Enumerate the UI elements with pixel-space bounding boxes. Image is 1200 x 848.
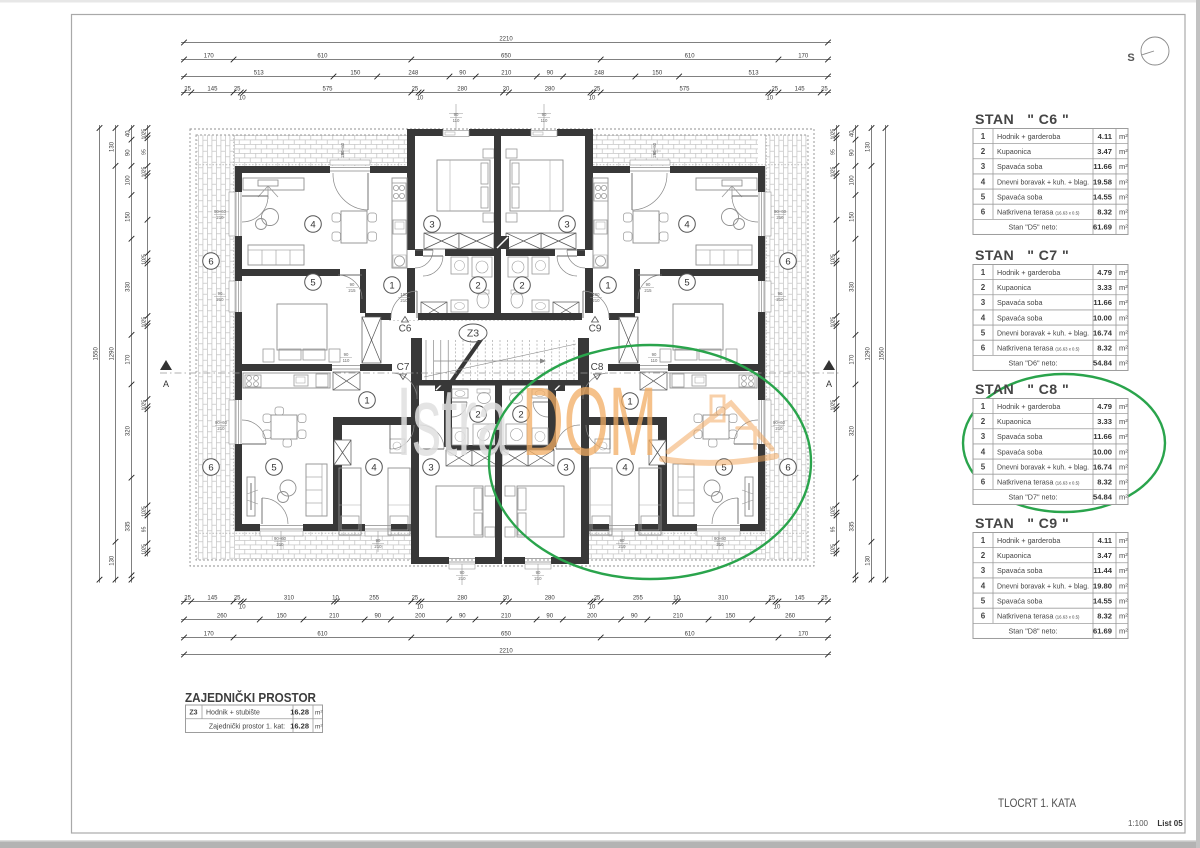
svg-text:10: 10 (589, 605, 596, 611)
svg-text:25: 25 (594, 595, 601, 601)
svg-text:8.32: 8.32 (1097, 612, 1112, 621)
svg-text:Z3: Z3 (189, 710, 197, 717)
svg-text:25: 25 (184, 86, 191, 92)
svg-text:280: 280 (457, 595, 468, 601)
svg-text:90: 90 (631, 613, 638, 619)
svg-text:6: 6 (785, 256, 790, 267)
svg-text:150: 150 (125, 211, 131, 222)
svg-text:4.79: 4.79 (1097, 268, 1112, 277)
svg-text:100: 100 (125, 175, 131, 186)
svg-text:10: 10 (589, 96, 596, 102)
svg-text:3: 3 (429, 219, 434, 230)
svg-text:10: 10 (141, 511, 147, 517)
svg-text:10: 10 (141, 172, 147, 178)
svg-text:25: 25 (412, 86, 419, 92)
svg-text:215: 215 (348, 288, 356, 293)
svg-text:8.32: 8.32 (1097, 208, 1112, 217)
svg-text:145: 145 (795, 595, 806, 601)
svg-text:Stan "D5" neto:: Stan "D5" neto: (1008, 223, 1057, 232)
svg-text:2: 2 (519, 280, 524, 291)
svg-text:150: 150 (652, 70, 663, 76)
svg-text:95: 95 (830, 149, 836, 155)
svg-text:210: 210 (618, 544, 626, 549)
svg-text:5: 5 (310, 277, 315, 288)
svg-text:610: 610 (317, 53, 328, 59)
svg-text:320: 320 (125, 425, 131, 436)
svg-text:11.66: 11.66 (1093, 432, 1112, 441)
svg-text:650: 650 (501, 53, 512, 59)
svg-text:210: 210 (458, 576, 466, 581)
svg-text:Stan "D8" neto:: Stan "D8" neto: (1008, 627, 1057, 636)
svg-text:210: 210 (501, 613, 512, 619)
svg-text:10: 10 (141, 322, 147, 328)
svg-text:40: 40 (125, 130, 131, 137)
svg-text:10: 10 (830, 511, 836, 517)
svg-text:25: 25 (234, 86, 241, 92)
svg-text:110: 110 (343, 358, 350, 363)
svg-text:10: 10 (141, 549, 147, 555)
svg-text:20: 20 (503, 595, 510, 601)
svg-text:25: 25 (830, 129, 836, 135)
svg-text:145: 145 (207, 86, 218, 92)
svg-text:Spavaća soba: Spavaća soba (997, 162, 1043, 171)
svg-text:25: 25 (141, 167, 147, 173)
svg-text:14.55: 14.55 (1093, 192, 1113, 201)
svg-text:1: 1 (981, 536, 986, 545)
svg-text:16.74: 16.74 (1093, 328, 1113, 337)
svg-text:10: 10 (239, 96, 246, 102)
svg-text:25: 25 (830, 167, 836, 173)
svg-text:1: 1 (605, 280, 610, 291)
svg-text:19.80: 19.80 (1093, 581, 1112, 590)
svg-text:54.84: 54.84 (1093, 359, 1113, 368)
svg-text:170: 170 (204, 631, 215, 637)
svg-text:150: 150 (277, 613, 288, 619)
svg-text:6: 6 (785, 462, 790, 473)
svg-text:6: 6 (208, 256, 213, 267)
svg-text:List 05: List 05 (1157, 819, 1183, 828)
svg-text:4: 4 (310, 219, 315, 230)
svg-text:170: 170 (125, 354, 131, 365)
svg-text:16.74: 16.74 (1093, 462, 1113, 471)
svg-text:40: 40 (849, 130, 855, 137)
svg-text:90: 90 (460, 570, 465, 575)
svg-text:5: 5 (981, 596, 986, 605)
svg-text:210: 210 (276, 542, 284, 547)
svg-text:61.69: 61.69 (1093, 627, 1112, 636)
svg-text:210: 210 (501, 70, 512, 76)
svg-text:260: 260 (217, 613, 228, 619)
svg-text:210: 210 (216, 297, 224, 302)
svg-text:25: 25 (821, 86, 828, 92)
svg-text:1: 1 (389, 280, 394, 291)
svg-text:95: 95 (141, 149, 147, 155)
svg-text:90+60: 90+60 (215, 420, 228, 425)
svg-text:100: 100 (400, 292, 408, 297)
svg-text:25: 25 (821, 595, 828, 601)
svg-text:280: 280 (457, 86, 468, 92)
svg-text:11.44: 11.44 (1093, 566, 1112, 575)
svg-text:90: 90 (536, 570, 541, 575)
svg-text:5: 5 (271, 462, 276, 473)
svg-text:25: 25 (769, 595, 776, 601)
svg-text:5: 5 (684, 277, 689, 288)
svg-text:11.66: 11.66 (1093, 298, 1112, 307)
svg-text:2: 2 (981, 147, 986, 156)
svg-text:10: 10 (830, 172, 836, 178)
svg-text:335: 335 (849, 521, 855, 532)
svg-text:10: 10 (417, 96, 424, 102)
svg-text:ZAJEDNIČKI PROSTOR: ZAJEDNIČKI PROSTOR (185, 690, 317, 705)
svg-text:STAN " C7 ": STAN " C7 " (975, 248, 1069, 264)
svg-text:Dnevni boravak + kuh. + blag.: Dnevni boravak + kuh. + blag. (997, 328, 1089, 337)
svg-text:210: 210 (775, 426, 783, 431)
svg-text:650: 650 (501, 631, 512, 637)
svg-text:3.47: 3.47 (1097, 551, 1112, 560)
svg-text:14.55: 14.55 (1093, 596, 1113, 605)
svg-text:25: 25 (141, 506, 147, 512)
svg-text:25: 25 (234, 595, 241, 601)
svg-text:25: 25 (184, 595, 191, 601)
svg-text:90: 90 (376, 538, 381, 543)
svg-text:A: A (163, 379, 169, 389)
svg-text:STAN " C6 ": STAN " C6 " (975, 112, 1069, 128)
svg-text:10: 10 (830, 322, 836, 328)
svg-text:25: 25 (141, 544, 147, 550)
svg-text:Stan "D6" neto:: Stan "D6" neto: (1008, 359, 1057, 368)
svg-text:513: 513 (749, 70, 760, 76)
svg-text:3: 3 (981, 298, 986, 307)
svg-text:54.84: 54.84 (1093, 493, 1113, 502)
svg-text:280: 280 (545, 86, 556, 92)
svg-text:150: 150 (725, 613, 736, 619)
svg-text:8.32: 8.32 (1097, 478, 1112, 487)
svg-text:610: 610 (685, 631, 696, 637)
svg-text:610: 610 (685, 53, 696, 59)
svg-text:310: 310 (718, 595, 729, 601)
svg-text:575: 575 (323, 86, 334, 92)
svg-text:25: 25 (141, 129, 147, 135)
svg-text:4: 4 (684, 219, 689, 230)
svg-text:10: 10 (830, 134, 836, 140)
svg-text:610: 610 (317, 631, 328, 637)
svg-text:10: 10 (830, 549, 836, 555)
svg-text:210: 210 (534, 576, 542, 581)
svg-text:1: 1 (981, 402, 986, 411)
svg-text:Hodnik + garderoba: Hodnik + garderoba (997, 132, 1060, 141)
svg-text:1: 1 (364, 395, 369, 406)
svg-text:25: 25 (830, 317, 836, 323)
svg-text:90: 90 (459, 613, 466, 619)
svg-text:90+60: 90+60 (714, 536, 727, 541)
svg-text:5: 5 (981, 462, 986, 471)
svg-text:25: 25 (771, 86, 778, 92)
svg-text:4: 4 (371, 462, 376, 473)
svg-text:150: 150 (350, 70, 361, 76)
svg-text:170: 170 (798, 631, 809, 637)
svg-text:210: 210 (716, 542, 724, 547)
svg-text:STAN " C8 ": STAN " C8 " (975, 382, 1069, 398)
svg-text:A: A (826, 379, 832, 389)
svg-text:Hodnik + garderoba: Hodnik + garderoba (997, 268, 1060, 277)
svg-text:Spavaća soba: Spavaća soba (997, 566, 1043, 575)
svg-text:145: 145 (207, 595, 218, 601)
svg-text:90: 90 (542, 112, 547, 117)
svg-text:Hodnik + garderoba: Hodnik + garderoba (997, 402, 1060, 411)
svg-text:Stan "D7" neto:: Stan "D7" neto: (1008, 493, 1057, 502)
svg-text:90: 90 (125, 149, 131, 156)
svg-text:10: 10 (673, 595, 680, 601)
svg-text:1: 1 (981, 268, 986, 277)
svg-text:3: 3 (981, 432, 986, 441)
svg-text:Hodnik + garderoba: Hodnik + garderoba (997, 536, 1060, 545)
svg-text:90+60: 90+60 (774, 209, 787, 214)
svg-text:3.33: 3.33 (1097, 417, 1112, 426)
svg-text:130: 130 (865, 141, 871, 152)
svg-text:3: 3 (981, 162, 986, 171)
svg-text:10: 10 (141, 405, 147, 411)
svg-text:110: 110 (651, 358, 658, 363)
svg-text:90: 90 (620, 538, 625, 543)
svg-text:Hodnik + stubište: Hodnik + stubište (206, 710, 260, 717)
svg-text:280: 280 (545, 595, 556, 601)
svg-text:S: S (1127, 52, 1134, 64)
svg-text:4.79: 4.79 (1097, 402, 1112, 411)
svg-text:4: 4 (981, 313, 986, 322)
svg-text:90: 90 (546, 613, 553, 619)
svg-text:Kupaonica: Kupaonica (997, 417, 1031, 426)
svg-text:6: 6 (981, 208, 986, 217)
svg-text:16.28: 16.28 (290, 708, 309, 717)
svg-text:Spavaća soba: Spavaća soba (997, 432, 1043, 441)
svg-text:25: 25 (141, 254, 147, 260)
svg-text:2: 2 (981, 283, 986, 292)
svg-text:Spavaća soba: Spavaća soba (997, 596, 1043, 605)
svg-text:90: 90 (350, 282, 355, 287)
svg-text:90: 90 (344, 352, 349, 357)
svg-text:25: 25 (141, 400, 147, 406)
svg-text:90: 90 (459, 70, 466, 76)
svg-text:10: 10 (417, 605, 424, 611)
svg-text:100: 100 (592, 292, 600, 297)
svg-text:130: 130 (109, 555, 115, 566)
svg-text:25: 25 (830, 544, 836, 550)
svg-text:110: 110 (453, 118, 460, 123)
svg-text:10: 10 (830, 405, 836, 411)
svg-text:Spavaća soba: Spavaća soba (997, 447, 1043, 456)
svg-text:Spavaća soba: Spavaća soba (997, 298, 1043, 307)
svg-text:3.47: 3.47 (1097, 147, 1112, 156)
svg-text:90+60: 90+60 (773, 420, 786, 425)
svg-text:248: 248 (408, 70, 419, 76)
svg-text:16.28: 16.28 (290, 721, 309, 730)
svg-text:330: 330 (125, 281, 131, 292)
svg-text:170: 170 (849, 354, 855, 365)
svg-text:90: 90 (652, 352, 657, 357)
svg-text:25: 25 (830, 254, 836, 260)
svg-text:150: 150 (849, 211, 855, 222)
svg-text:330: 330 (849, 281, 855, 292)
svg-text:6: 6 (208, 462, 213, 473)
svg-text:2: 2 (981, 551, 986, 560)
svg-text:100: 100 (849, 175, 855, 186)
svg-text:320: 320 (849, 425, 855, 436)
svg-text:1290: 1290 (865, 347, 871, 361)
svg-text:Kupaonica: Kupaonica (997, 147, 1031, 156)
svg-text:19.58: 19.58 (1093, 177, 1112, 186)
svg-text:210: 210 (216, 215, 224, 220)
svg-text:210: 210 (776, 215, 784, 220)
svg-text:4.11: 4.11 (1098, 132, 1113, 141)
svg-text:Istra: Istra (396, 367, 509, 476)
svg-text:C6: C6 (399, 324, 412, 335)
svg-text:10: 10 (141, 134, 147, 140)
svg-text:TLOCRT 1. KATA: TLOCRT 1. KATA (998, 796, 1076, 810)
svg-text:170: 170 (204, 53, 215, 59)
svg-text:130: 130 (109, 141, 115, 152)
svg-text:6: 6 (981, 344, 986, 353)
svg-text:Dnevni boravak + kuh. + blag.: Dnevni boravak + kuh. + blag. (997, 581, 1089, 590)
svg-text:10: 10 (774, 605, 781, 611)
svg-text:575: 575 (679, 86, 690, 92)
svg-text:210: 210 (592, 298, 600, 303)
svg-text:210: 210 (329, 613, 340, 619)
svg-text:90: 90 (454, 112, 459, 117)
svg-text:Spavaća soba: Spavaća soba (997, 192, 1043, 201)
svg-text:2: 2 (475, 280, 480, 291)
svg-text:10: 10 (766, 96, 773, 102)
svg-text:Dnevni boravak + kuh. + blag.: Dnevni boravak + kuh. + blag. (997, 462, 1089, 471)
svg-text:95: 95 (141, 526, 147, 532)
svg-text:25: 25 (412, 595, 419, 601)
svg-text:90+60: 90+60 (214, 209, 227, 214)
svg-text:90: 90 (374, 613, 381, 619)
svg-text:Dnevni boravak + kuh. + blag.: Dnevni boravak + kuh. + blag. (997, 177, 1089, 186)
svg-text:10: 10 (239, 605, 246, 611)
svg-text:Z3: Z3 (467, 328, 479, 340)
svg-text:8.32: 8.32 (1097, 344, 1112, 353)
svg-text:90: 90 (646, 282, 651, 287)
svg-text:3.33: 3.33 (1097, 283, 1112, 292)
svg-text:6: 6 (981, 478, 986, 487)
svg-text:Spavaća soba: Spavaća soba (997, 313, 1043, 322)
svg-text:4.11: 4.11 (1098, 536, 1113, 545)
svg-text:1:100: 1:100 (1128, 819, 1149, 828)
svg-text:3: 3 (981, 566, 986, 575)
svg-text:25: 25 (830, 506, 836, 512)
svg-text:255: 255 (633, 595, 644, 601)
svg-text:1: 1 (981, 132, 986, 141)
svg-text:90: 90 (849, 149, 855, 156)
svg-text:2210: 2210 (499, 36, 513, 42)
svg-text:215: 215 (644, 288, 652, 293)
svg-text:4: 4 (981, 177, 986, 186)
svg-text:200: 200 (415, 613, 426, 619)
svg-text:130: 130 (865, 555, 871, 566)
svg-text:Kupaonica: Kupaonica (997, 551, 1031, 560)
svg-text:1550: 1550 (879, 347, 885, 361)
svg-text:5: 5 (981, 192, 986, 201)
svg-text:C9: C9 (589, 324, 602, 335)
svg-text:513: 513 (254, 70, 265, 76)
svg-text:200: 200 (587, 613, 598, 619)
svg-text:90+60: 90+60 (274, 536, 287, 541)
svg-text:210: 210 (217, 426, 225, 431)
svg-text:10: 10 (830, 259, 836, 265)
svg-text:95: 95 (830, 526, 836, 532)
svg-text:10: 10 (141, 259, 147, 265)
svg-text:90: 90 (218, 291, 223, 296)
svg-text:210: 210 (673, 613, 684, 619)
svg-text:Kupaonica: Kupaonica (997, 283, 1031, 292)
svg-text:260: 260 (785, 613, 796, 619)
svg-text:255: 255 (369, 595, 380, 601)
svg-text:90: 90 (547, 70, 554, 76)
svg-text:11.66: 11.66 (1093, 162, 1112, 171)
svg-text:210: 210 (374, 544, 382, 549)
svg-text:STAN " C9 ": STAN " C9 " (975, 516, 1069, 532)
svg-text:2: 2 (981, 417, 986, 426)
svg-text:DOM: DOM (522, 367, 657, 476)
svg-text:10: 10 (332, 595, 339, 601)
svg-text:210: 210 (400, 298, 408, 303)
svg-text:6: 6 (981, 612, 986, 621)
svg-text:4: 4 (981, 581, 986, 590)
svg-text:61.69: 61.69 (1093, 223, 1112, 232)
svg-text:335: 335 (125, 521, 131, 532)
svg-text:1550: 1550 (93, 347, 99, 361)
svg-text:145: 145 (795, 86, 806, 92)
svg-text:3: 3 (564, 219, 569, 230)
svg-text:20: 20 (503, 86, 510, 92)
svg-text:110: 110 (541, 118, 548, 123)
svg-text:10.00: 10.00 (1093, 447, 1112, 456)
svg-text:4: 4 (981, 447, 986, 456)
svg-text:25: 25 (830, 400, 836, 406)
svg-text:170: 170 (798, 53, 809, 59)
svg-text:25: 25 (141, 317, 147, 323)
svg-text:210: 210 (776, 297, 784, 302)
svg-text:248: 248 (594, 70, 605, 76)
svg-text:5: 5 (981, 328, 986, 337)
svg-text:Zajednički prostor 1. kat:: Zajednički prostor 1. kat: (209, 723, 285, 730)
svg-text:25: 25 (594, 86, 601, 92)
svg-text:2210: 2210 (499, 648, 513, 654)
svg-text:90: 90 (778, 291, 783, 296)
svg-text:1290: 1290 (109, 347, 115, 361)
svg-text:310: 310 (284, 595, 295, 601)
svg-text:10.00: 10.00 (1093, 313, 1112, 322)
